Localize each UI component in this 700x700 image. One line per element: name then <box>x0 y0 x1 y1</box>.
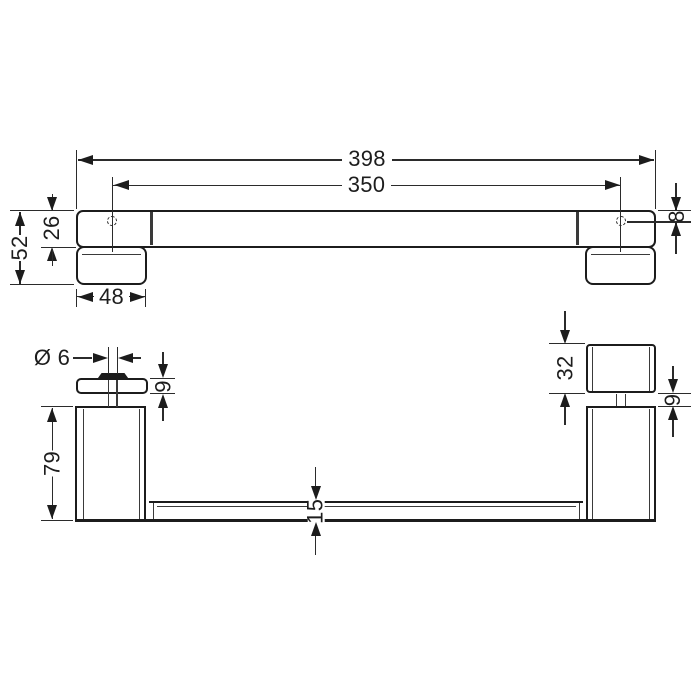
post-left-edge-line <box>83 409 84 519</box>
dim-48-arrow-left <box>78 292 93 302</box>
bar-end-divider-left <box>150 212 153 245</box>
dim-15-line <box>315 467 316 487</box>
dim-diameter-line <box>73 357 92 358</box>
dim-32-arrow-bottom <box>560 393 570 407</box>
dim-15-line <box>315 536 316 555</box>
dim-350-arrow-left <box>114 180 129 190</box>
dim-32-line <box>564 311 565 330</box>
cap-block-right <box>586 344 657 393</box>
dim-26-line <box>52 249 53 266</box>
dim-9-right-line <box>672 366 673 379</box>
extension-line <box>108 347 109 374</box>
dim-32-label: 32 <box>552 356 578 381</box>
extension-line <box>10 284 74 285</box>
dim-48-arrow-right <box>130 292 145 302</box>
dim-9-right-line <box>672 420 673 437</box>
dim-9-left-line <box>162 352 163 365</box>
extension-line <box>145 289 146 307</box>
bar-front-inner-line <box>157 506 576 507</box>
dim-52-arrow-top <box>15 212 25 226</box>
bar-end-divider-right <box>576 212 579 245</box>
dim-79-label: 79 <box>39 451 66 477</box>
cap-right-edge-line <box>649 347 650 391</box>
extension-line <box>41 406 73 407</box>
dim-26-arrow-top <box>47 197 57 211</box>
post-right-edge-line <box>649 409 650 519</box>
bar-post-seam-right <box>579 503 580 519</box>
dim-15-arrow-bottom <box>311 522 321 536</box>
cap-plate-left <box>76 378 148 394</box>
dim-398-label: 398 <box>342 148 392 171</box>
extension-line <box>76 150 77 209</box>
extension-line <box>41 247 76 248</box>
dim-350-arrow-right <box>605 180 620 190</box>
dim-diameter-arrow-right <box>118 353 133 363</box>
bar-front-bottom-edge <box>75 519 656 522</box>
dim-9-right-arrow-bottom <box>668 406 678 420</box>
dim-79-arrow-top <box>47 408 57 422</box>
bar-post-seam-left <box>153 503 154 519</box>
dim-398-arrow-left <box>78 155 93 165</box>
dim-9-left-arrow-bottom <box>158 394 168 408</box>
technical-drawing-canvas: 398 350 8 52 26 48 <box>0 0 700 700</box>
dim-diameter-arrow-left <box>93 353 108 363</box>
dim-8-label: 8 <box>667 206 686 227</box>
dim-398-arrow-right <box>639 155 654 165</box>
cap-right-edge-line <box>592 347 593 391</box>
dim-79-arrow-bottom <box>47 505 57 519</box>
post-left <box>75 406 146 523</box>
plate-right-edge-line <box>591 254 650 255</box>
dim-diameter-line <box>133 357 141 358</box>
dim-26-label: 26 <box>40 215 64 241</box>
screw-shaft-left <box>116 380 117 407</box>
post-right-edge-line <box>592 409 593 519</box>
dim-32-line <box>564 407 565 425</box>
bar-front-top-edge <box>149 501 583 504</box>
dim-48-label: 48 <box>94 286 129 308</box>
extension-line <box>655 150 656 209</box>
dim-diameter-label: Ø 6 <box>30 347 74 369</box>
post-right <box>586 406 657 523</box>
screw-head-left <box>98 373 129 379</box>
dim-350-label: 350 <box>342 173 391 196</box>
dim-52-label: 52 <box>7 235 33 261</box>
dim-9-left-line <box>162 408 163 421</box>
screw-shaft-right <box>625 394 626 407</box>
dim-52-arrow-bottom <box>15 270 25 284</box>
screw-shaft-left <box>108 380 109 407</box>
centerline-right <box>620 177 621 252</box>
post-left-edge-line <box>139 409 140 519</box>
dim-15-label: 15 <box>307 500 324 522</box>
dim-32-arrow-top <box>560 330 570 344</box>
bar-outline <box>76 210 656 248</box>
extension-line <box>41 520 73 521</box>
plate-left-edge-line <box>82 254 141 255</box>
screw-shaft-right <box>616 394 617 407</box>
extension-line <box>76 289 77 307</box>
